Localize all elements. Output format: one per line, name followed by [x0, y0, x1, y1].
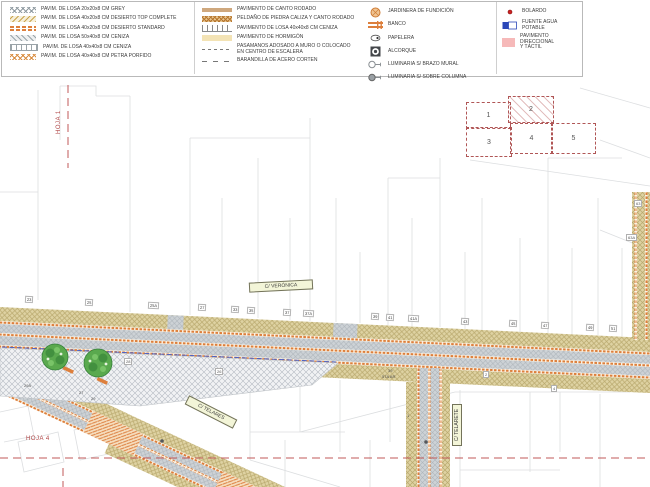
legend-item: PAPELERA [368, 33, 493, 43]
house-number: 23 [25, 296, 34, 303]
gray-diagonal-swatch [10, 35, 36, 41]
legend-column-pavings-1: PAVIM. DE LOSA 20x20x8 CM GREY PAVIM. DE… [10, 7, 192, 63]
dashed-line-swatch [202, 60, 232, 63]
cross-street [406, 368, 450, 487]
legend-column-symbols: BOLARDO FUENTE AGUA POTABLE PAVIMENTO DI… [502, 7, 580, 54]
plot-label: 57A AR [382, 375, 395, 380]
house-number: 37A [303, 310, 314, 318]
plot-label: 39 [388, 369, 392, 374]
legend-column-furniture: JARDINERA DE FUNDICIÓN BANCO PAPELERA AL… [368, 7, 493, 86]
right-street [632, 192, 650, 340]
legend-item: BOLARDO [502, 7, 580, 17]
keymap-sheet-number: 4 [530, 135, 534, 142]
legend-item-label: LUMINARIA S/ SOBRE COLUMNA [388, 75, 466, 81]
plot-label: 26 [215, 368, 223, 375]
legend-item: BARANDILLA DE ACERO CORTEN [202, 58, 362, 64]
plot-label: 27 [79, 391, 83, 396]
legend-item-label: JARDINERA DE FUNDICIÓN [388, 9, 454, 15]
legend-item: LUMINARIA S/ BRAZO MURAL [368, 60, 493, 70]
legend-item: PAVIM. DE LOSA 50x40x8 CM CENIZA [10, 35, 192, 41]
plot-label: 63 [634, 200, 642, 207]
legend-item: PAVIM. DE LOSA 40x20x8 CM DESIERTO STAND… [10, 25, 192, 31]
legend-panel: PAVIM. DE LOSA 20x20x8 CM GREY PAVIM. DE… [1, 1, 583, 77]
legend-item: PAVIM. DE LOSA 40x40x8 CM PETRA PORFIDO [10, 54, 192, 60]
plot-label: 28 [124, 358, 132, 365]
house-number: 27 [198, 304, 207, 311]
bollard-icon [502, 7, 517, 17]
house-number: 35 [247, 307, 256, 314]
orange-dash-swatch [10, 25, 36, 31]
legend-item-label: BOLARDO [522, 9, 546, 15]
tactile-paving-swatch [502, 38, 515, 47]
plot-label: 2 [483, 371, 489, 378]
house-number: 25A [148, 302, 159, 310]
legend-item: LUMINARIA S/ SOBRE COLUMNA [368, 73, 493, 83]
keymap-sheet-4: 4 [510, 123, 553, 154]
keymap-sheet-2-current: 2 [508, 96, 554, 123]
tan-solid-line-swatch [202, 8, 232, 12]
keymap-sheet-1: 1 [466, 102, 511, 129]
plot-label: 29 [91, 397, 95, 402]
legend-item: PAVIM. DE LOSA 20x20x8 CM GREY [10, 7, 192, 13]
house-number: 39 [371, 313, 380, 320]
fountain-icon [502, 21, 517, 31]
bench-icon [368, 20, 383, 30]
legend-item: PELDAÑO DE PIEDRA CALIZA Y CANTO RODADO [202, 16, 362, 22]
keymap-sheet-number: 5 [572, 135, 576, 142]
tree-pit-icon [368, 47, 383, 57]
legend-item-label: BANCO [388, 22, 406, 28]
legend-item-label: LUMINARIA S/ BRAZO MURAL [388, 62, 459, 68]
legend-item: PAVIM. DE LOSA 40x20x8 CM DESIERTO TOP C… [10, 16, 192, 22]
street-name-telarete: C/ TELARETE [452, 404, 462, 446]
lamp-symbol [160, 439, 164, 443]
house-number: 49 [586, 324, 595, 331]
legend-item-label: PAVIM. DE LOSA 40x40x8 CM CENIZA [43, 45, 131, 51]
legend-item-label: PAVIM. DE LOSA 40x40x8 CM PETRA PORFIDO [41, 54, 151, 60]
legend-item-label: PAVIMENTO DE HORMIGÓN [237, 35, 303, 41]
legend-item: PAVIMENTO DE LOSA 40x40x8 CM CENIZA [202, 25, 362, 32]
legend-item: PASAMANOS ADOSADO A MURO O COLOCADO EN C… [202, 44, 362, 55]
legend-item-label: PAVIM. DE LOSA 50x40x8 CM CENIZA [41, 35, 129, 41]
fine-dashed-line-swatch [202, 48, 232, 51]
plot-label: 29A [24, 384, 31, 389]
legend-item-label: PAVIM. DE LOSA 40x20x8 CM DESIERTO TOP C… [41, 16, 177, 22]
sheet-label-hoja-1: HOJA 1 [56, 110, 62, 134]
cream-solid-swatch [202, 35, 232, 41]
legend-item: ALCORQUE [368, 47, 493, 57]
legend-item-label: PAVIMENTO DE CANTO RODADO [237, 7, 316, 13]
gray-grid-swatch [10, 44, 38, 51]
house-number: 33 [231, 306, 240, 313]
legend-item: PAVIMENTO DE HORMIGÓN [202, 35, 362, 41]
house-number: 43 [461, 318, 470, 325]
keymap-sheet-number: 2 [529, 106, 533, 113]
legend-item-label: PAVIM. DE LOSA 20x20x8 CM GREY [41, 7, 125, 13]
tree-icon [84, 349, 112, 377]
lamp-symbol [424, 440, 428, 444]
legend-divider [194, 2, 195, 74]
house-number: 41 [386, 314, 395, 321]
driveway-crossing [333, 323, 358, 338]
tan-diagonal-swatch [10, 16, 36, 22]
plot-label: 63A [626, 234, 637, 241]
legend-item-label: PAVIMENTO DIRECCIONAL Y TÁCTIL [520, 34, 580, 51]
keymap-sheet-number: 1 [487, 112, 491, 119]
wall-lamp-icon [368, 60, 383, 70]
plan-viewport: PAVIM. DE LOSA 20x20x8 CM GREY PAVIM. DE… [0, 0, 650, 487]
legend-item-label: PAVIMENTO DE LOSA 40x40x8 CM CENIZA [237, 26, 338, 32]
orange-crosshatch-swatch [10, 54, 36, 60]
legend-item: PAVIMENTO DIRECCIONAL Y TÁCTIL [502, 34, 580, 51]
legend-item-label: PAVIM. DE LOSA 40x20x8 CM DESIERTO STAND… [41, 26, 165, 32]
tree-icon [42, 344, 68, 370]
litter-bin-icon [368, 33, 383, 43]
house-number: 25 [85, 299, 94, 306]
house-number: 41A [408, 315, 419, 323]
legend-item-label: BARANDILLA DE ACERO CORTEN [237, 58, 318, 64]
legend-item-label: PAPELERA [388, 36, 414, 42]
legend-item-label: FUENTE AGUA POTABLE [522, 20, 580, 31]
grey-crosshatch-swatch [10, 7, 36, 13]
legend-item: PAVIM. DE LOSA 40x40x8 CM CENIZA [10, 44, 192, 51]
legend-item-label: PELDAÑO DE PIEDRA CALIZA Y CANTO RODADO [237, 16, 354, 22]
house-number: 37 [283, 309, 292, 316]
house-number: 51 [609, 325, 618, 332]
keymap-sheet-3: 3 [466, 127, 512, 157]
sheet-label-hoja-4: HOJA 4 [26, 436, 50, 442]
plot-label: 1 [407, 414, 409, 419]
column-lamp-icon [368, 73, 383, 83]
legend-item-label: PASAMANOS ADOSADO A MURO O COLOCADO EN C… [237, 44, 351, 55]
legend-item: BANCO [368, 20, 493, 30]
driveway-crossing [167, 315, 184, 330]
legend-item: FUENTE AGUA POTABLE [502, 20, 580, 31]
planter-icon [368, 7, 383, 17]
legend-column-pavings-2: PAVIMENTO DE CANTO RODADO PELDAÑO DE PIE… [202, 7, 362, 67]
legend-item: JARDINERA DE FUNDICIÓN [368, 7, 493, 17]
legend-item: PAVIMENTO DE CANTO RODADO [202, 7, 362, 13]
legend-divider [496, 2, 497, 74]
tick-hatch-swatch [202, 25, 232, 32]
orange-speckle-swatch [202, 16, 232, 22]
legend-item-label: ALCORQUE [388, 49, 416, 55]
house-number: 47 [541, 322, 550, 329]
keymap-sheet-5: 5 [551, 123, 596, 154]
plot-label: 4 [551, 385, 557, 392]
house-number: 45 [509, 320, 518, 327]
keymap-sheet-number: 3 [487, 139, 491, 146]
